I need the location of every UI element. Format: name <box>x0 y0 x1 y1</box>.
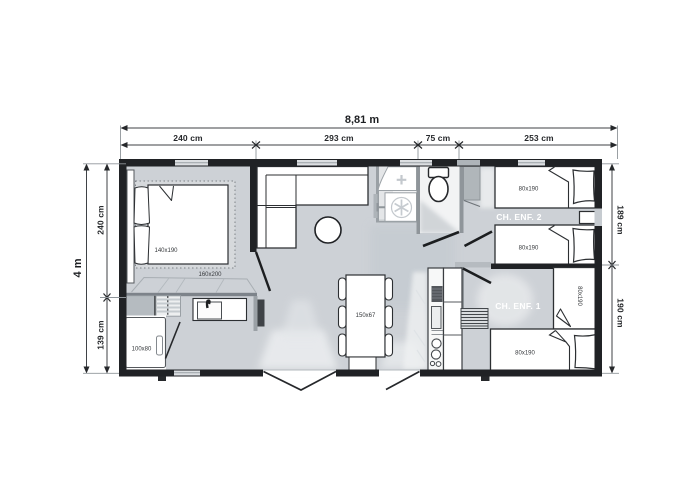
svg-text:80x190: 80x190 <box>576 286 582 306</box>
svg-text:140x190: 140x190 <box>154 248 178 254</box>
svg-text:80x190: 80x190 <box>519 187 539 193</box>
svg-text:75 cm: 75 cm <box>426 133 451 143</box>
svg-text:253 cm: 253 cm <box>524 133 554 143</box>
svg-text:CH. ENF. 1: CH. ENF. 1 <box>495 301 541 311</box>
svg-text:240 cm: 240 cm <box>173 133 203 143</box>
svg-text:150x67: 150x67 <box>356 313 376 319</box>
svg-text:80x190: 80x190 <box>515 351 535 357</box>
svg-text:293 cm: 293 cm <box>324 133 354 143</box>
svg-text:CH. ENF. 2: CH. ENF. 2 <box>496 212 542 222</box>
svg-text:139 cm: 139 cm <box>96 320 106 350</box>
svg-text:160x200: 160x200 <box>198 272 222 278</box>
svg-text:189 cm: 189 cm <box>616 205 626 235</box>
svg-text:190 cm: 190 cm <box>616 298 626 328</box>
svg-text:8,81 m: 8,81 m <box>345 114 379 126</box>
svg-text:100x80: 100x80 <box>132 347 152 353</box>
svg-text:240 cm: 240 cm <box>96 205 106 235</box>
svg-text:80x190: 80x190 <box>519 246 539 252</box>
svg-text:4 m: 4 m <box>72 258 84 277</box>
